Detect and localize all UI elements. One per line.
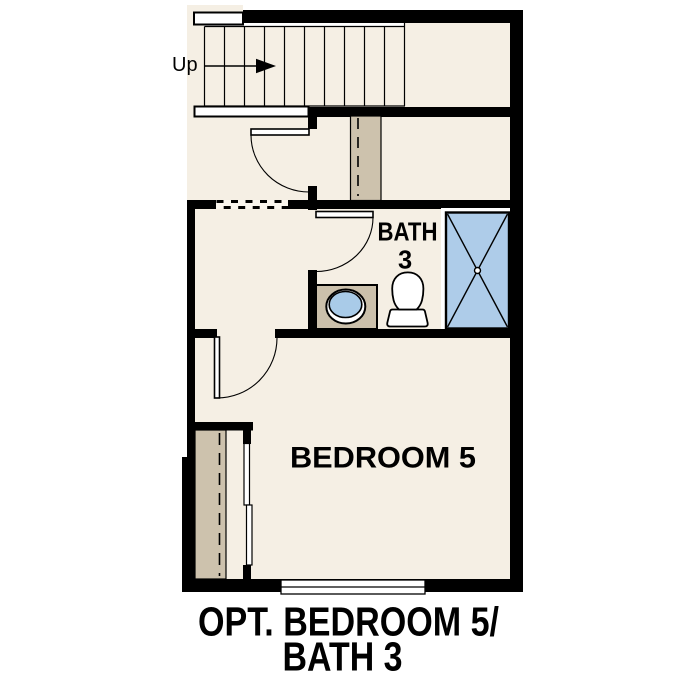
svg-text:Up: Up [172, 54, 198, 76]
svg-text:BATH 3: BATH 3 [283, 634, 403, 680]
svg-text:3: 3 [398, 247, 412, 275]
svg-text:BATH: BATH [378, 219, 438, 247]
svg-text:BEDROOM 5: BEDROOM 5 [290, 442, 476, 475]
